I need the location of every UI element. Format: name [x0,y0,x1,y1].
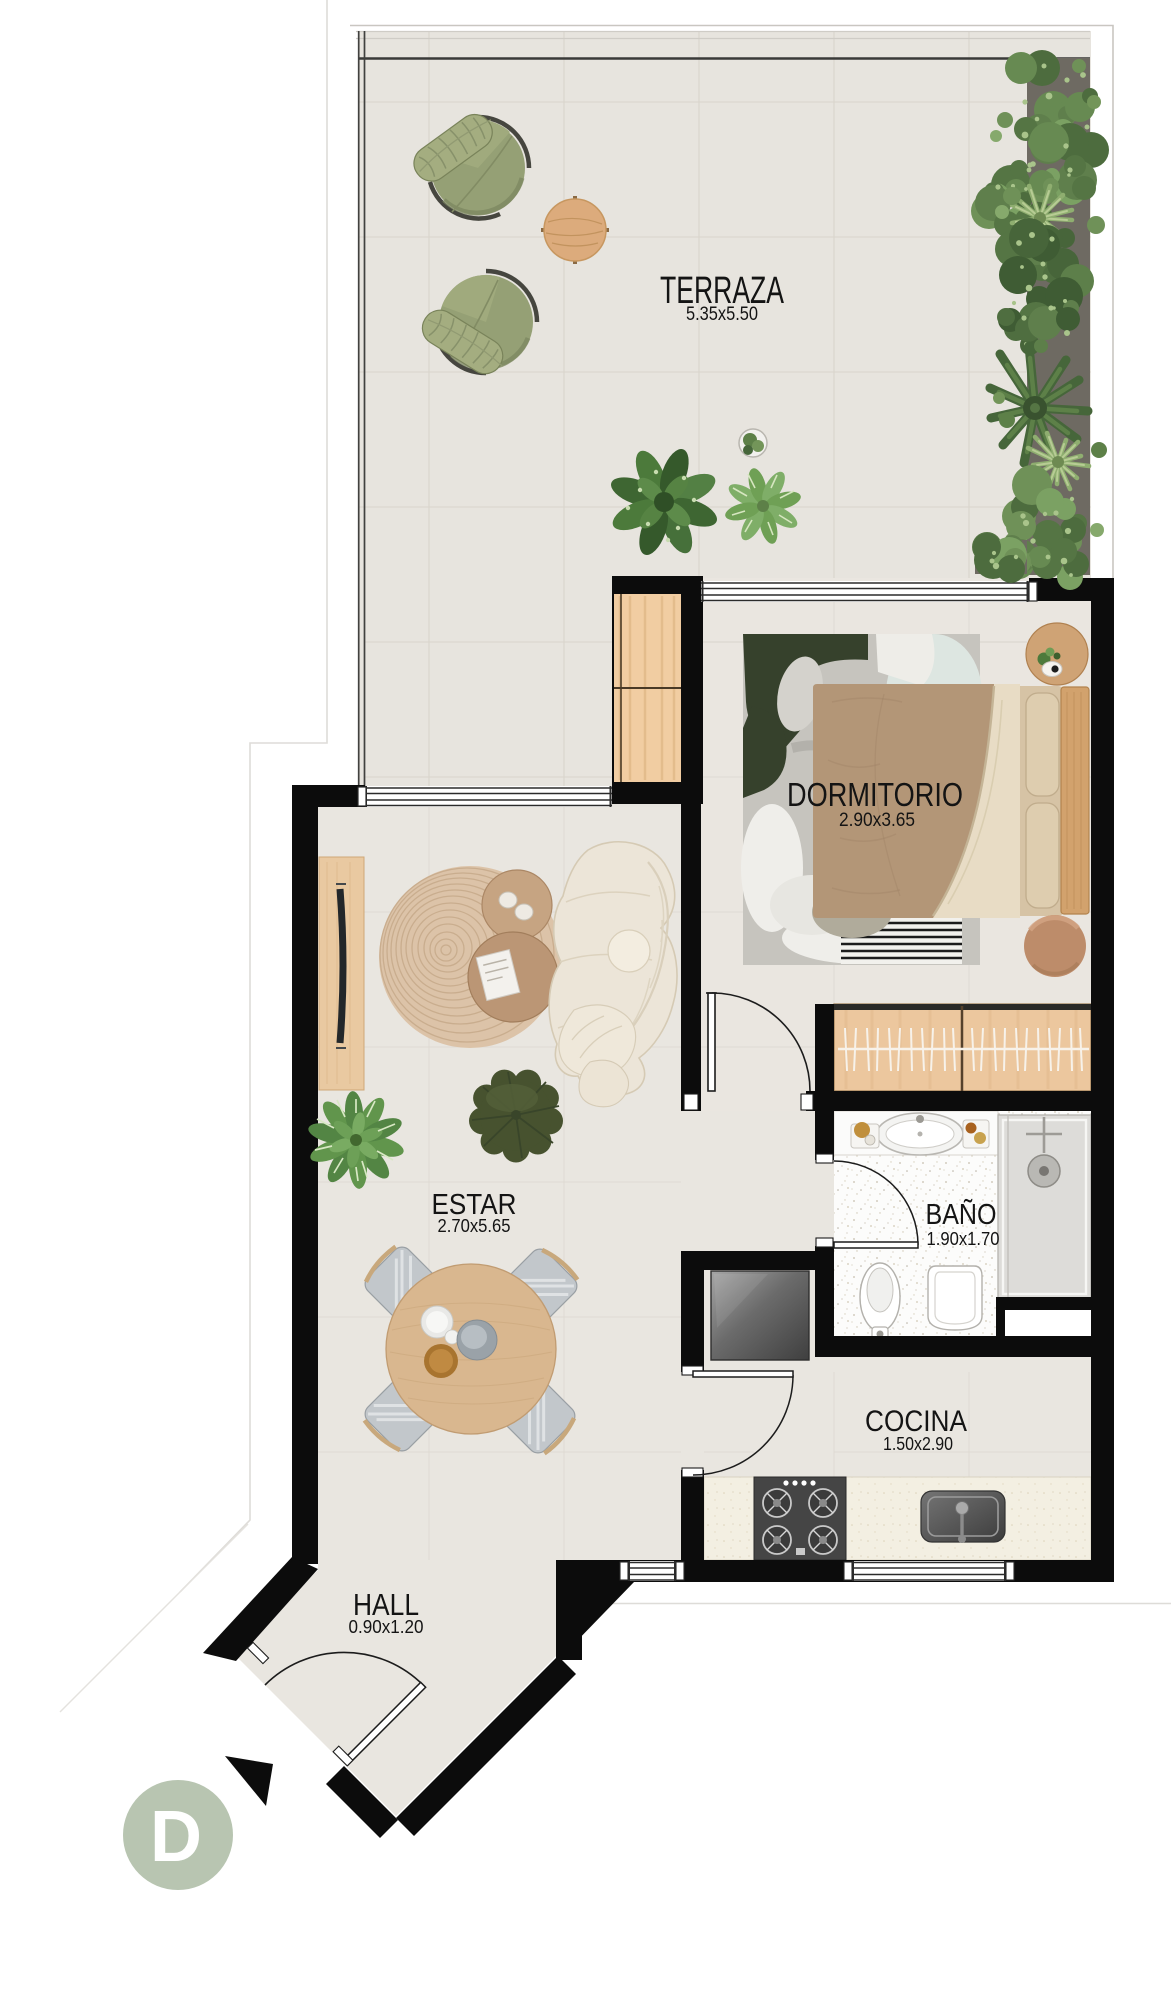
svg-text:0.90x1.20: 0.90x1.20 [349,1617,424,1637]
svg-text:2.70x5.65: 2.70x5.65 [438,1216,511,1236]
svg-text:1.50x2.90: 1.50x2.90 [883,1434,953,1454]
svg-text:D: D [150,1797,202,1877]
svg-text:5.35x5.50: 5.35x5.50 [686,304,758,325]
svg-text:2.90x3.65: 2.90x3.65 [839,810,915,831]
svg-text:DORMITORIO: DORMITORIO [787,776,963,813]
svg-text:1.90x1.70: 1.90x1.70 [927,1229,1000,1249]
svg-text:BAÑO: BAÑO [926,1197,997,1231]
